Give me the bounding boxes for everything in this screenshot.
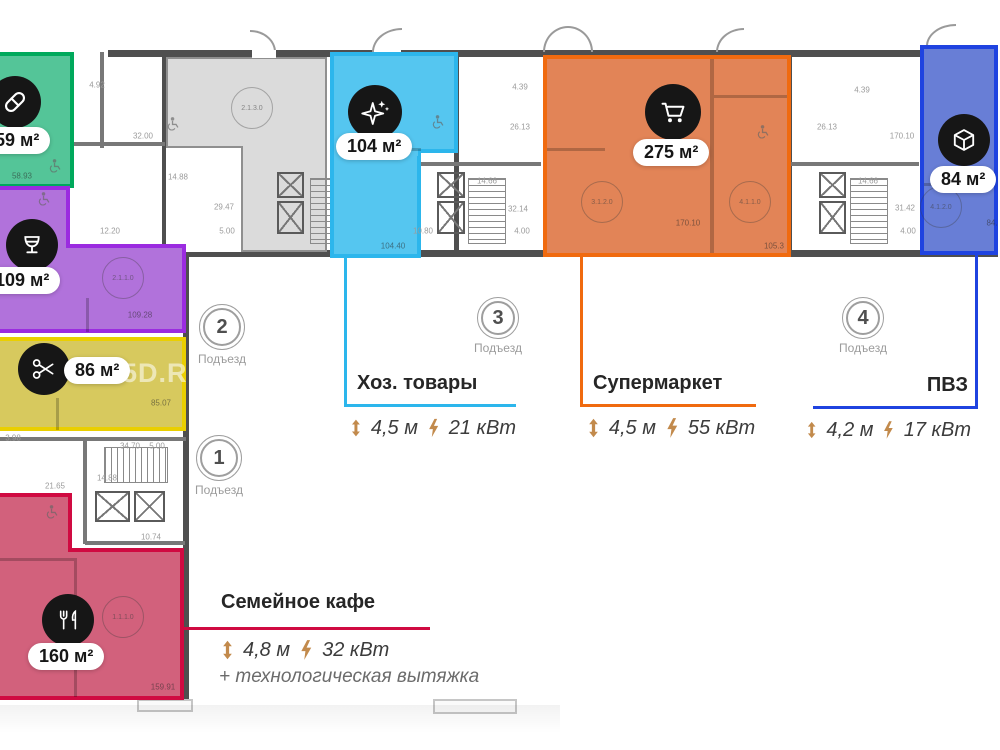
wheelchair-icon (432, 115, 444, 134)
dimension-label: 12.20 (100, 227, 120, 236)
entrance-1-label: Подъезд (195, 483, 243, 497)
wall (100, 52, 104, 148)
wheelchair-icon (38, 192, 50, 211)
zone-partition (86, 298, 89, 332)
power-value: 21 кВт (449, 417, 516, 440)
dimension-label: 14.88 (97, 474, 117, 483)
elevator-icon (134, 491, 165, 522)
leader-line (183, 627, 430, 630)
shop-name: ПВЗ (813, 374, 968, 397)
dimension-label: 170.10 (890, 132, 914, 141)
dimension-label: 4.92 (89, 81, 105, 90)
power-icon (882, 418, 894, 442)
wheelchair-icon (757, 125, 769, 144)
dimension-label: 21.65 (45, 482, 65, 491)
shop-name: Супермаркет (593, 372, 722, 395)
zone-area-number: 109.28 (128, 311, 152, 320)
area-pill: 275 м² (633, 139, 709, 166)
height-arrow-icon (587, 416, 600, 440)
entrance-3-circle: 3 (481, 301, 515, 335)
height-arrow-icon (221, 638, 234, 662)
wheelchair-icon (49, 159, 61, 178)
power-icon (665, 416, 679, 440)
ceiling-height: 4,5 м (609, 417, 656, 440)
door-opening (252, 50, 276, 58)
zone-cafe[interactable] (0, 493, 72, 551)
sparkles-icon (348, 85, 402, 139)
entrance-number: 1 (213, 447, 224, 470)
leader-line (344, 256, 347, 406)
wheelchair-icon (46, 505, 58, 524)
cutlery-icon (42, 594, 94, 646)
dimension-label: 32.00 (133, 132, 153, 141)
zone-area-number: 104.40 (381, 242, 405, 251)
leader-line (813, 406, 978, 409)
entrance-2-circle: 2 (203, 308, 241, 346)
dimension-label: 5.00 (149, 442, 165, 451)
area-pill: 160 м² (28, 643, 104, 670)
dimension-label: 4.39 (512, 83, 528, 92)
shop-specs: 4,5 м 55 кВт (586, 416, 756, 440)
area-pill: 109 м² (0, 267, 60, 294)
elevator-icon (437, 201, 465, 234)
entrance-4-circle: 4 (846, 301, 880, 335)
cart-icon (645, 84, 701, 140)
leader-line (580, 404, 756, 407)
leader-line (580, 255, 583, 407)
dimension-label: 32.14 (508, 205, 528, 214)
door-arc-icon (250, 30, 276, 52)
shop-name: Хоз. товары (357, 372, 477, 395)
elevator-icon (95, 491, 130, 522)
dimension-label: 29.47 (214, 203, 234, 212)
leader-line (975, 253, 978, 408)
dimension-label: 34.70 (120, 442, 140, 451)
room-id-circle: 3.1.2.0 (581, 181, 623, 223)
dimension-label: 3.98 (5, 434, 21, 443)
entrance-3-label: Подъезд (474, 341, 522, 355)
door-arc-icon (926, 24, 956, 46)
ceiling-height: 4,8 м (243, 639, 290, 662)
shop-specs: 4,5 м 21 кВт (350, 416, 516, 440)
ceiling-height: 4,5 м (371, 417, 418, 440)
zone-partition (547, 148, 605, 151)
elevator-icon (437, 172, 465, 198)
wall (0, 437, 186, 441)
dimension-label: 10.74 (141, 533, 161, 542)
area-pill: 104 м² (336, 133, 412, 160)
dimension-label: 14.88 (168, 173, 188, 182)
shop-specs: 4,8 м 32 кВт (221, 638, 389, 662)
dimension-label: 5.00 (219, 227, 235, 236)
zone-area-number: 84. (986, 219, 997, 228)
zone-area-number: 85.07 (151, 399, 171, 408)
wall (85, 541, 185, 545)
zone-partition (56, 398, 59, 430)
leader-line (344, 404, 516, 407)
entrance-number: 2 (216, 316, 227, 339)
entrance-number: 4 (857, 307, 868, 330)
dimension-label: 4.00 (514, 227, 530, 236)
height-arrow-icon (806, 418, 817, 442)
watermark: 5D.RU (122, 358, 208, 389)
zone-area-number: 170.10 (676, 219, 700, 228)
power-icon (299, 638, 313, 662)
ground-shadow (0, 705, 560, 733)
zone-area-number: 105.3 (764, 242, 784, 251)
zone-partition (0, 558, 74, 561)
door-arc-icon (372, 28, 402, 52)
dimension-label: 26.13 (817, 123, 837, 132)
wall (83, 440, 87, 544)
entrance-4-label: Подъезд (839, 341, 887, 355)
dimension-label: 4.00 (900, 227, 916, 236)
zone-partition (714, 95, 787, 98)
area-pill: 86 м² (64, 357, 130, 384)
door-arc-icon (543, 26, 568, 52)
door-arc-icon (568, 26, 593, 52)
gray-unit-notch (166, 146, 243, 252)
entrance-1-circle: 1 (200, 439, 238, 477)
room-id-circle: 2.1.3.0 (231, 87, 273, 129)
power-value: 32 кВт (322, 639, 389, 662)
zone-seam (0, 544, 68, 554)
dimension-label: 31.42 (895, 204, 915, 213)
elevator-icon (277, 201, 304, 234)
wine-glass-icon (6, 219, 58, 271)
dimension-label: 14.66 (858, 177, 878, 186)
area-pill: 59 м² (0, 127, 50, 154)
shop-specs: 4,2 м 17 кВт (806, 418, 971, 442)
stairs-icon (850, 178, 888, 244)
shop-name: Семейное кафе (221, 591, 375, 614)
dimension-label: 26.13 (510, 123, 530, 132)
scissors-icon (18, 343, 70, 395)
dimension-label: 10.80 (413, 227, 433, 236)
ceiling-height: 4,2 м (826, 419, 873, 442)
entrance-number: 3 (492, 307, 503, 330)
wheelchair-icon (167, 117, 179, 136)
zone-area-number: 159.91 (151, 683, 175, 692)
dimension-label: 14.66 (477, 177, 497, 186)
wall (789, 162, 919, 166)
zone-partition (710, 59, 714, 253)
power-value: 55 кВт (688, 417, 755, 440)
elevator-icon (819, 201, 846, 234)
zone-area-number: 58.93 (12, 172, 32, 181)
shop-note: + технологическая вытяжка (219, 666, 479, 688)
room-id-circle: 4.1.1.0 (729, 181, 771, 223)
height-arrow-icon (350, 416, 362, 440)
dimension-label: 4.39 (854, 86, 870, 95)
stairs-icon (468, 178, 506, 244)
elevator-icon (819, 172, 846, 198)
power-icon (427, 416, 440, 440)
floorplan-canvas: 59 м² 109 м² 86 м² 104 м² 275 м² 84 (0, 0, 1000, 750)
area-pill: 84 м² (930, 166, 996, 193)
zone-household[interactable] (330, 150, 421, 258)
door-arc-icon (716, 28, 744, 52)
cube-icon (938, 114, 990, 166)
room-id-circle: 1.1.1.0 (102, 596, 144, 638)
elevator-icon (277, 172, 304, 198)
room-id-circle: 2.1.1.0 (102, 257, 144, 299)
wall (60, 142, 165, 146)
power-value: 17 кВт (904, 419, 971, 442)
